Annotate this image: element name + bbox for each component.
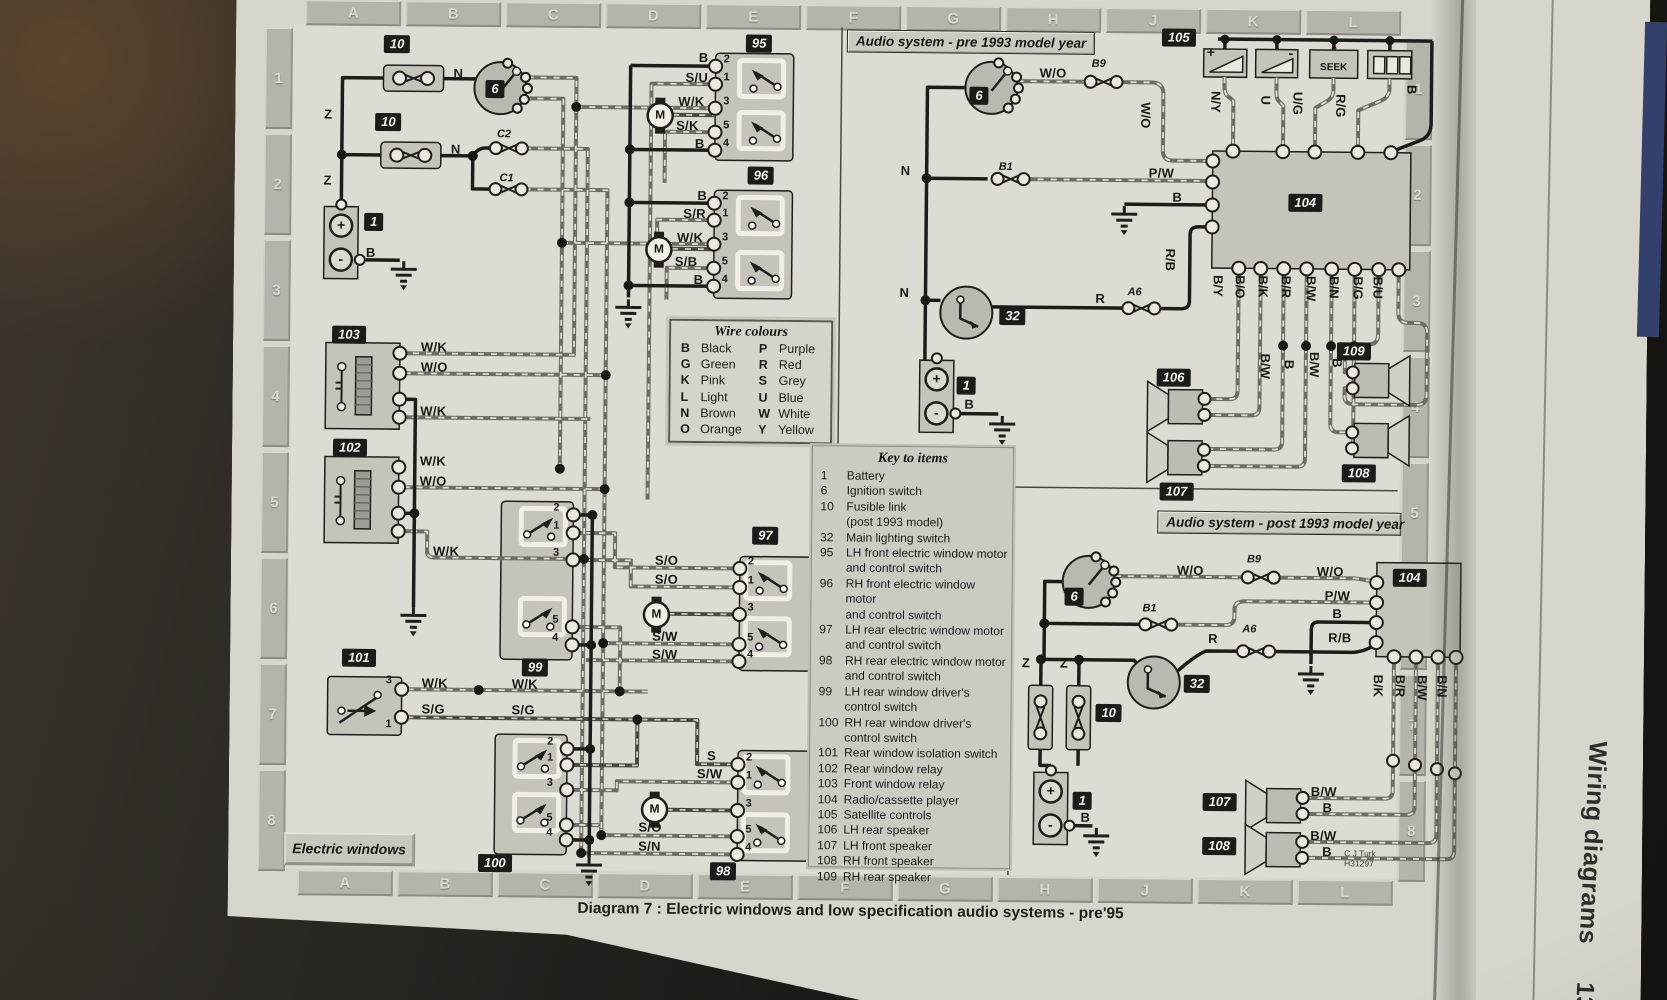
key-item-text: Rear window relay (844, 761, 1006, 778)
terminal-number: 2 (748, 556, 754, 568)
wire-colour-code: U (758, 389, 778, 405)
wire-colour-name: Light (700, 389, 758, 406)
key-item-number: 102 (818, 761, 844, 777)
wire-label: S/W (652, 647, 678, 662)
photographed-manual-page: AABBCCDDEEFFGGHHJJKKLL1122334455667788 (0, 0, 1667, 1000)
fuse-a6-pre (1122, 302, 1160, 314)
wire-colour-name: Black (701, 340, 759, 357)
wire-label: S/W (697, 766, 723, 781)
component-number-badge: 103 (332, 326, 366, 344)
terminal-number: 1 (385, 718, 391, 730)
wire-colours-legend: Wire colours BBlackPPurpleGGreenRRedKPin… (668, 319, 833, 445)
terminal-number: 1 (553, 520, 559, 532)
key-item-number: 1 (821, 468, 847, 484)
wire-label: N (451, 142, 461, 157)
key-item-number: 99 (818, 684, 844, 715)
key-item-text: LH front speaker (843, 838, 1005, 855)
key-item-text: Rear window isolation switch (844, 746, 1006, 763)
wire-label: W/K (421, 339, 447, 354)
terminal-number: 5 (546, 812, 552, 824)
wire-label: W/O (1138, 102, 1153, 128)
battery-minus-sign: - (1042, 816, 1058, 832)
wire-colour-name: Orange (700, 421, 758, 438)
motor-label: M (652, 108, 668, 122)
terminal-number: 2 (553, 502, 559, 514)
key-item-row: 97LH rear electric window motor and cont… (811, 622, 1011, 655)
wire-label: B (1172, 190, 1182, 205)
wire-label: C2 (497, 128, 511, 140)
key-item-text: Fusible link (post 1993 model) (846, 499, 1008, 531)
wire-colour-row: GGreenRRed (671, 356, 831, 374)
component-number-badge: 108 (1342, 464, 1376, 482)
key-item-number: 10 (820, 499, 846, 530)
volume-up-plus: + (1203, 44, 1219, 60)
terminal-number: 3 (747, 602, 753, 614)
wire-colour-code: O (680, 421, 700, 437)
component-number-badge: 107 (1160, 482, 1194, 500)
fuse-c2 (490, 142, 528, 154)
terminal-number: 4 (745, 842, 751, 854)
wire-label: S/O (655, 553, 678, 568)
audio-post-title: Audio system - post 1993 model year (1157, 510, 1401, 535)
key-item-number: 109 (817, 869, 843, 885)
relay-103 (325, 342, 400, 429)
wire-colour-code: Y (758, 422, 778, 438)
wire-label: S (707, 748, 716, 763)
fusible-link-10a (383, 65, 443, 92)
preset-key-icon (1387, 57, 1398, 74)
key-item-number: 6 (821, 484, 847, 500)
wire-label: Z (1060, 656, 1068, 671)
wire-label: S/G (511, 702, 534, 717)
wire-label: B (694, 272, 704, 287)
wire-label: W/O (1317, 564, 1344, 579)
terminal-number: 2 (547, 736, 553, 748)
component-number-badge: 101 (342, 649, 376, 667)
wire-colour-row: NBrownWWhite (670, 405, 830, 423)
key-item-number: 96 (819, 576, 845, 622)
terminal-number: 1 (722, 207, 728, 219)
component-number-badge: 109 (1337, 342, 1371, 360)
wire-label: W/O (420, 473, 447, 488)
lighting-switch-pre (940, 286, 992, 338)
fuse-b9-post (1242, 571, 1280, 583)
speaker-107-pre (1147, 432, 1210, 483)
wire-label: S/R (683, 206, 706, 221)
key-item-number: 101 (818, 746, 844, 762)
terminal-number: 4 (546, 827, 552, 839)
wire-colour-row: OOrangeYYellow (670, 421, 830, 439)
component-number-badge: 107 (1203, 793, 1237, 811)
wire-label: Z (323, 172, 331, 187)
wire-label: B (1080, 810, 1090, 825)
wire-label: B (1323, 800, 1333, 815)
wire-colour-code: L (680, 389, 700, 405)
component-number-badge: 96 (748, 167, 775, 185)
wire-label: B (699, 50, 709, 65)
motor-label: M (648, 607, 664, 621)
wire-colour-name: Grey (779, 373, 821, 390)
key-item-number: 104 (818, 792, 844, 808)
wire-label: U (1258, 95, 1273, 105)
terminal-number: 4 (723, 137, 729, 149)
component-number-badge: 108 (1202, 837, 1236, 855)
fuse-b1-pre (992, 173, 1030, 185)
component-number-badge: 95 (746, 35, 773, 53)
key-item-number: 108 (817, 853, 843, 869)
volume-down-minus: - (1283, 45, 1299, 61)
wire-colour-name: White (778, 406, 820, 423)
wire-label: B (1282, 360, 1297, 370)
component-number-badge: 1 (1073, 792, 1092, 810)
key-item-row: 100RH rear window driver's control switc… (810, 715, 1010, 748)
wire-colours-title: Wire colours (671, 324, 831, 342)
fusible-link-post-right (1066, 686, 1091, 750)
wire-label: B (695, 136, 705, 151)
fusible-link-10b (381, 142, 441, 169)
component-number-badge: 104 (1288, 194, 1322, 212)
preset-key-icon (1374, 57, 1385, 74)
wire-label: B/G (1350, 276, 1365, 299)
component-number-badge: 6 (485, 80, 504, 98)
terminal-number: 4 (552, 632, 558, 644)
key-item-text: LH rear electric window motor and contro… (845, 623, 1007, 655)
wire-label: B/W (1311, 784, 1337, 799)
key-item-number: 95 (820, 545, 846, 576)
component-number-badge: 1 (957, 377, 976, 395)
wire-label: B1 (999, 161, 1013, 173)
wire-label: B (1404, 85, 1419, 95)
battery-post (1033, 765, 1075, 844)
wire-label: S/U (685, 70, 708, 85)
terminal-number: 1 (746, 770, 752, 782)
terminal-number: 4 (747, 649, 753, 661)
audio-pre-title: Audio system - pre 1993 model year (847, 29, 1096, 54)
component-number-badge: 98 (710, 862, 737, 880)
relay-102 (324, 456, 399, 543)
terminal-number: 5 (722, 255, 728, 267)
battery-plus-sign: + (1043, 782, 1059, 798)
key-item-row: 109RH rear speaker (809, 869, 1009, 886)
wire-label: W/K (677, 230, 703, 245)
terminal-number: 3 (722, 231, 728, 243)
battery-plus-sign: + (333, 217, 349, 233)
wire-colour-row: KPinkSGrey (671, 372, 831, 390)
wire-label: B/N (1326, 276, 1341, 299)
key-item-number: 98 (819, 653, 845, 684)
wire-label: W/O (1177, 563, 1204, 578)
key-item-text: LH rear speaker (843, 823, 1005, 840)
artist-credit: C J TurkH31297 (1344, 849, 1376, 868)
wire-colour-code: S (759, 373, 779, 389)
wire-label: B/O (1232, 275, 1247, 298)
battery-plus-sign: + (929, 370, 945, 386)
motor-label: M (651, 242, 667, 256)
key-item-text: RH front electric window motor and contr… (845, 576, 1007, 624)
wire-label: N (454, 66, 464, 81)
wire-label: Z (1022, 655, 1030, 670)
key-item-row: 98RH rear electric window motor and cont… (811, 653, 1011, 686)
component-number-badge: 10 (1095, 704, 1122, 722)
component-number-badge: 6 (969, 87, 988, 105)
wire-label: W/K (420, 453, 446, 468)
wire-colour-name: Blue (778, 389, 820, 406)
key-item-text: LH front electric window motor and contr… (846, 546, 1008, 578)
terminal-number: 1 (724, 71, 730, 83)
terminal-number: 1 (748, 575, 754, 587)
wire-label: Z (324, 106, 332, 121)
fuse-b9-pre (1084, 76, 1122, 88)
wire-label: S/K (676, 118, 699, 133)
battery-minus-sign: - (928, 404, 944, 420)
wire-label: P/W (1149, 165, 1175, 180)
component-number-badge: 105 (1162, 28, 1196, 46)
key-item-number: 32 (820, 530, 846, 546)
key-item-row: 10Fusible link (post 1993 model) (812, 499, 1012, 532)
key-to-items: Key to items 1Battery6Ignition switch10F… (808, 445, 1014, 869)
wire-label: W/O (421, 359, 448, 374)
wire-label: W/K (422, 675, 448, 690)
terminal-number: 1 (547, 752, 553, 764)
wire-label: P/W (1325, 588, 1351, 603)
terminal-number: 3 (553, 547, 559, 559)
wire-label: A6 (1127, 286, 1141, 298)
wire-label: S/W (652, 629, 678, 644)
wire-colour-name: Brown (700, 405, 758, 422)
terminal-number: 5 (747, 632, 753, 644)
wire-label: S/O (655, 572, 678, 587)
wire-label: C1 (500, 172, 514, 184)
key-item-number: 100 (818, 715, 844, 746)
wire-label: B/W (1415, 675, 1430, 700)
electric-windows-label: Electric windows (284, 832, 415, 866)
key-item-number: 106 (817, 823, 843, 839)
seek-button-label: SEEK (1312, 62, 1356, 73)
wire-colour-code: K (681, 372, 701, 388)
wire-label: B/K (1255, 275, 1270, 298)
wire-label: B/W (1310, 828, 1336, 843)
wire-label: A6 (1242, 623, 1256, 635)
battery-minus-sign: - (333, 251, 349, 267)
wire-label: R/B (1163, 249, 1178, 272)
wire-label: S/G (421, 701, 444, 716)
wire-label: B (697, 188, 707, 203)
component-number-badge: 10 (375, 113, 402, 131)
wire-label: N/Y (1208, 91, 1223, 113)
wire-label: B (1332, 606, 1342, 621)
key-item-text: RH rear window driver's control switch (844, 715, 1006, 747)
key-item-number: 103 (818, 776, 844, 792)
component-number-badge: 100 (478, 854, 512, 872)
wire-label: B/Y (1210, 275, 1225, 297)
wire-label: B/U (1370, 277, 1385, 300)
terminal-number: 2 (746, 752, 752, 764)
key-item-number: 97 (819, 622, 845, 653)
wire-label: S/O (638, 820, 661, 835)
key-item-text: Satellite controls (843, 807, 1005, 824)
key-item-row: 96RH front electric window motor and con… (811, 576, 1011, 624)
terminal-number: 4 (722, 273, 728, 285)
terminal-number: 3 (547, 777, 553, 789)
wire-label: W/K (678, 94, 704, 109)
terminal-number: 2 (724, 53, 730, 65)
wire-colour-name: Pink (701, 372, 759, 389)
component-number-badge: 102 (333, 439, 367, 457)
fuse-a6-post (1237, 645, 1275, 657)
key-item-text: Radio/cassette player (844, 792, 1006, 809)
wire-label: B/W (1258, 353, 1273, 378)
component-number-badge: 32 (999, 307, 1026, 325)
terminal-number: 2 (722, 190, 728, 202)
key-item-row: 95LH front electric window motor and con… (812, 545, 1012, 578)
wire-label: B9 (1092, 58, 1106, 70)
fuse-c1 (489, 183, 527, 195)
wire-label: N (901, 163, 911, 178)
wire-label: B/W (1303, 276, 1318, 301)
wire-label: W/K (433, 544, 459, 559)
component-number-badge: 32 (1184, 675, 1211, 693)
terminal-number: 5 (723, 119, 729, 131)
wire-label: B9 (1247, 553, 1261, 565)
fuse-b1-post (1139, 618, 1177, 630)
wire-label: B (1322, 844, 1332, 859)
wire-label: W/K (512, 676, 538, 691)
wire-label: B (964, 397, 974, 412)
speaker-109 (1346, 355, 1409, 406)
wire-label: R (1095, 291, 1105, 306)
wire-label: B/R (1393, 675, 1408, 698)
key-item-text: Main lighting switch (846, 530, 1008, 547)
wire-colour-code: P (759, 341, 779, 357)
wire-label: S/B (675, 254, 698, 269)
wire-label: W/K (420, 403, 446, 418)
key-item-row: 99LH rear window driver's control switch (810, 684, 1010, 717)
wire-label: B/R (1278, 276, 1293, 299)
wire-colour-code: G (681, 356, 701, 372)
terminal-number: 3 (386, 674, 392, 686)
lighting-switch-post (1128, 656, 1180, 708)
wire-colour-code: W (758, 405, 778, 421)
key-title: Key to items (813, 450, 1013, 468)
wire-label: B/K (1371, 675, 1386, 698)
wire-label: R/G (1333, 94, 1348, 117)
preset-key-icon (1400, 57, 1411, 74)
wire-colour-code: R (759, 357, 779, 373)
wire-colour-row: BBlackPPurple (671, 340, 831, 358)
fusible-link-post-left (1028, 685, 1053, 749)
page-tilt-wrapper: AABBCCDDEEFFGGHHJJKKLL1122334455667788 (0, 0, 1667, 1000)
component-number-badge: 1 (364, 213, 383, 231)
component-number-badge: 99 (522, 658, 549, 676)
component-number-badge: 97 (752, 527, 779, 545)
wire-label: B/W (1307, 352, 1322, 377)
wire-colour-row: LLightUBlue (670, 388, 830, 406)
wire-colour-code: N (680, 405, 700, 421)
wire-label: R (1208, 631, 1218, 646)
wire-colour-name: Red (779, 357, 821, 374)
speaker-107-post (1245, 780, 1308, 831)
wire-label: B (366, 245, 376, 260)
terminal-number: 5 (552, 614, 558, 626)
component-number-badge: 106 (1157, 368, 1191, 386)
component-number-badge: 104 (1393, 569, 1427, 587)
key-item-text: RH front speaker (843, 854, 1005, 871)
terminal-number: 5 (745, 824, 751, 836)
speaker-106 (1147, 381, 1210, 432)
terminal-number: 3 (746, 798, 752, 810)
key-item-text: RH rear electric window motor and contro… (845, 653, 1007, 685)
key-item-number: 107 (817, 838, 843, 854)
key-item-text: LH rear window driver's control switch (844, 684, 1006, 716)
wire-label: U/G (1290, 92, 1305, 115)
speaker-108-pre (1346, 415, 1409, 466)
battery-ew (324, 199, 366, 278)
wire-colour-code: B (681, 340, 701, 356)
key-item-text: Battery (847, 468, 1009, 485)
wire-label: R/B (1328, 630, 1351, 645)
battery-pre (919, 353, 961, 432)
wire-label: S/N (638, 839, 661, 854)
wire-colour-name: Purple (779, 341, 821, 358)
key-item-number: 105 (817, 807, 843, 823)
wire-colour-name: Green (701, 356, 759, 373)
component-number-badge: 10 (384, 35, 411, 53)
key-item-text: Front window relay (844, 777, 1006, 794)
terminal-number: 3 (723, 95, 729, 107)
wire-label: B1 (1142, 602, 1156, 614)
wire-colour-name: Yellow (778, 422, 820, 439)
wire-label: W/O (1040, 65, 1067, 80)
component-number-badge: 6 (1065, 588, 1084, 606)
speaker-108-post (1245, 824, 1308, 875)
seek-caret-icon: ˆ (1324, 44, 1344, 61)
motor-label: M (646, 802, 662, 816)
wire-label: N (899, 285, 909, 300)
key-item-text: RH rear speaker (843, 869, 1005, 886)
key-item-text: Ignition switch (847, 484, 1009, 501)
